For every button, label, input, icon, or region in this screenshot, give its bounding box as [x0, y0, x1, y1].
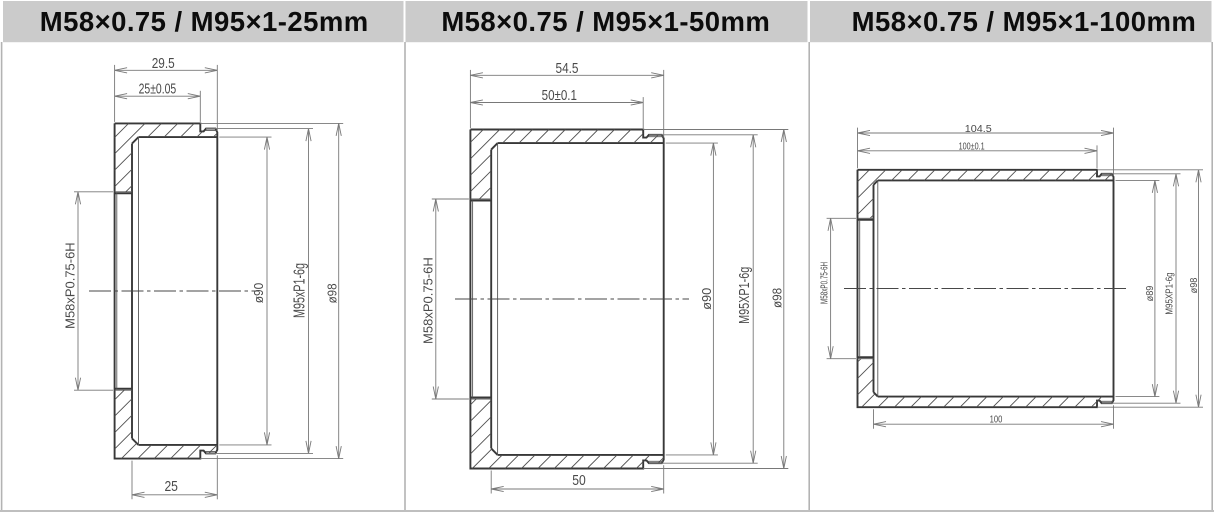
svg-text:M58xP0.75-6H: M58xP0.75-6H: [64, 242, 78, 329]
svg-text:54.5: 54.5: [556, 61, 579, 77]
svg-text:ø90: ø90: [252, 283, 266, 304]
svg-text:25: 25: [164, 479, 178, 495]
svg-text:50±0.1: 50±0.1: [542, 88, 577, 104]
svg-text:M58xP0.75-6H: M58xP0.75-6H: [421, 257, 435, 344]
svg-text:25±0.05: 25±0.05: [139, 82, 177, 98]
svg-text:ø98: ø98: [770, 288, 784, 308]
svg-text:104.5: 104.5: [965, 124, 992, 135]
svg-text:M95XP1-6g: M95XP1-6g: [1165, 272, 1176, 314]
svg-text:50: 50: [572, 473, 586, 489]
svg-text:M58×0.75 / M95×1-25mm: M58×0.75 / M95×1-25mm: [40, 6, 369, 37]
svg-text:M58×0.75 / M95×1-50mm: M58×0.75 / M95×1-50mm: [441, 6, 770, 37]
svg-text:ø98: ø98: [1189, 277, 1200, 293]
svg-text:M58xP0.75-6H: M58xP0.75-6H: [820, 262, 831, 304]
svg-text:M95xP1-6g: M95xP1-6g: [292, 263, 309, 318]
svg-text:ø98: ø98: [325, 283, 339, 303]
svg-text:100: 100: [990, 415, 1003, 426]
svg-text:M58×0.75 / M95×1-100mm: M58×0.75 / M95×1-100mm: [852, 6, 1197, 37]
svg-text:29.5: 29.5: [152, 56, 175, 72]
svg-text:M95XP1-6g: M95XP1-6g: [737, 267, 753, 324]
svg-text:ø89: ø89: [1145, 285, 1156, 301]
svg-text:100±0.1: 100±0.1: [959, 142, 985, 153]
svg-text:ø90: ø90: [700, 288, 714, 310]
